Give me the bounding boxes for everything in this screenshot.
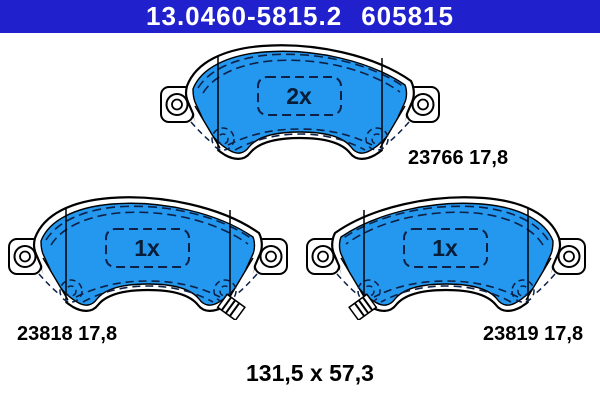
part-number: 13.0460-5815.2: [146, 1, 342, 32]
brake-pad-set-diagram: 13.0460-5815.2 605815: [0, 0, 600, 400]
oe-number: 605815: [361, 1, 454, 32]
pad-label-23818: 23818 17,8: [17, 323, 117, 345]
dimensions-label: 131,5 x 57,3: [246, 361, 374, 386]
brake-pad-drawing-23766: 2x: [160, 40, 440, 168]
header-bar: 13.0460-5815.2 605815: [0, 0, 600, 33]
quantity-label: 1x: [134, 235, 160, 261]
brake-pad-drawing-23819: 1x: [306, 192, 586, 320]
brake-pad-drawing-23818: 1x: [8, 192, 288, 320]
pad-label-23766: 23766 17,8: [408, 147, 508, 169]
quantity-label: 2x: [286, 83, 312, 109]
quantity-label: 1x: [432, 235, 458, 261]
pad-label-23819: 23819 17,8: [483, 323, 583, 345]
